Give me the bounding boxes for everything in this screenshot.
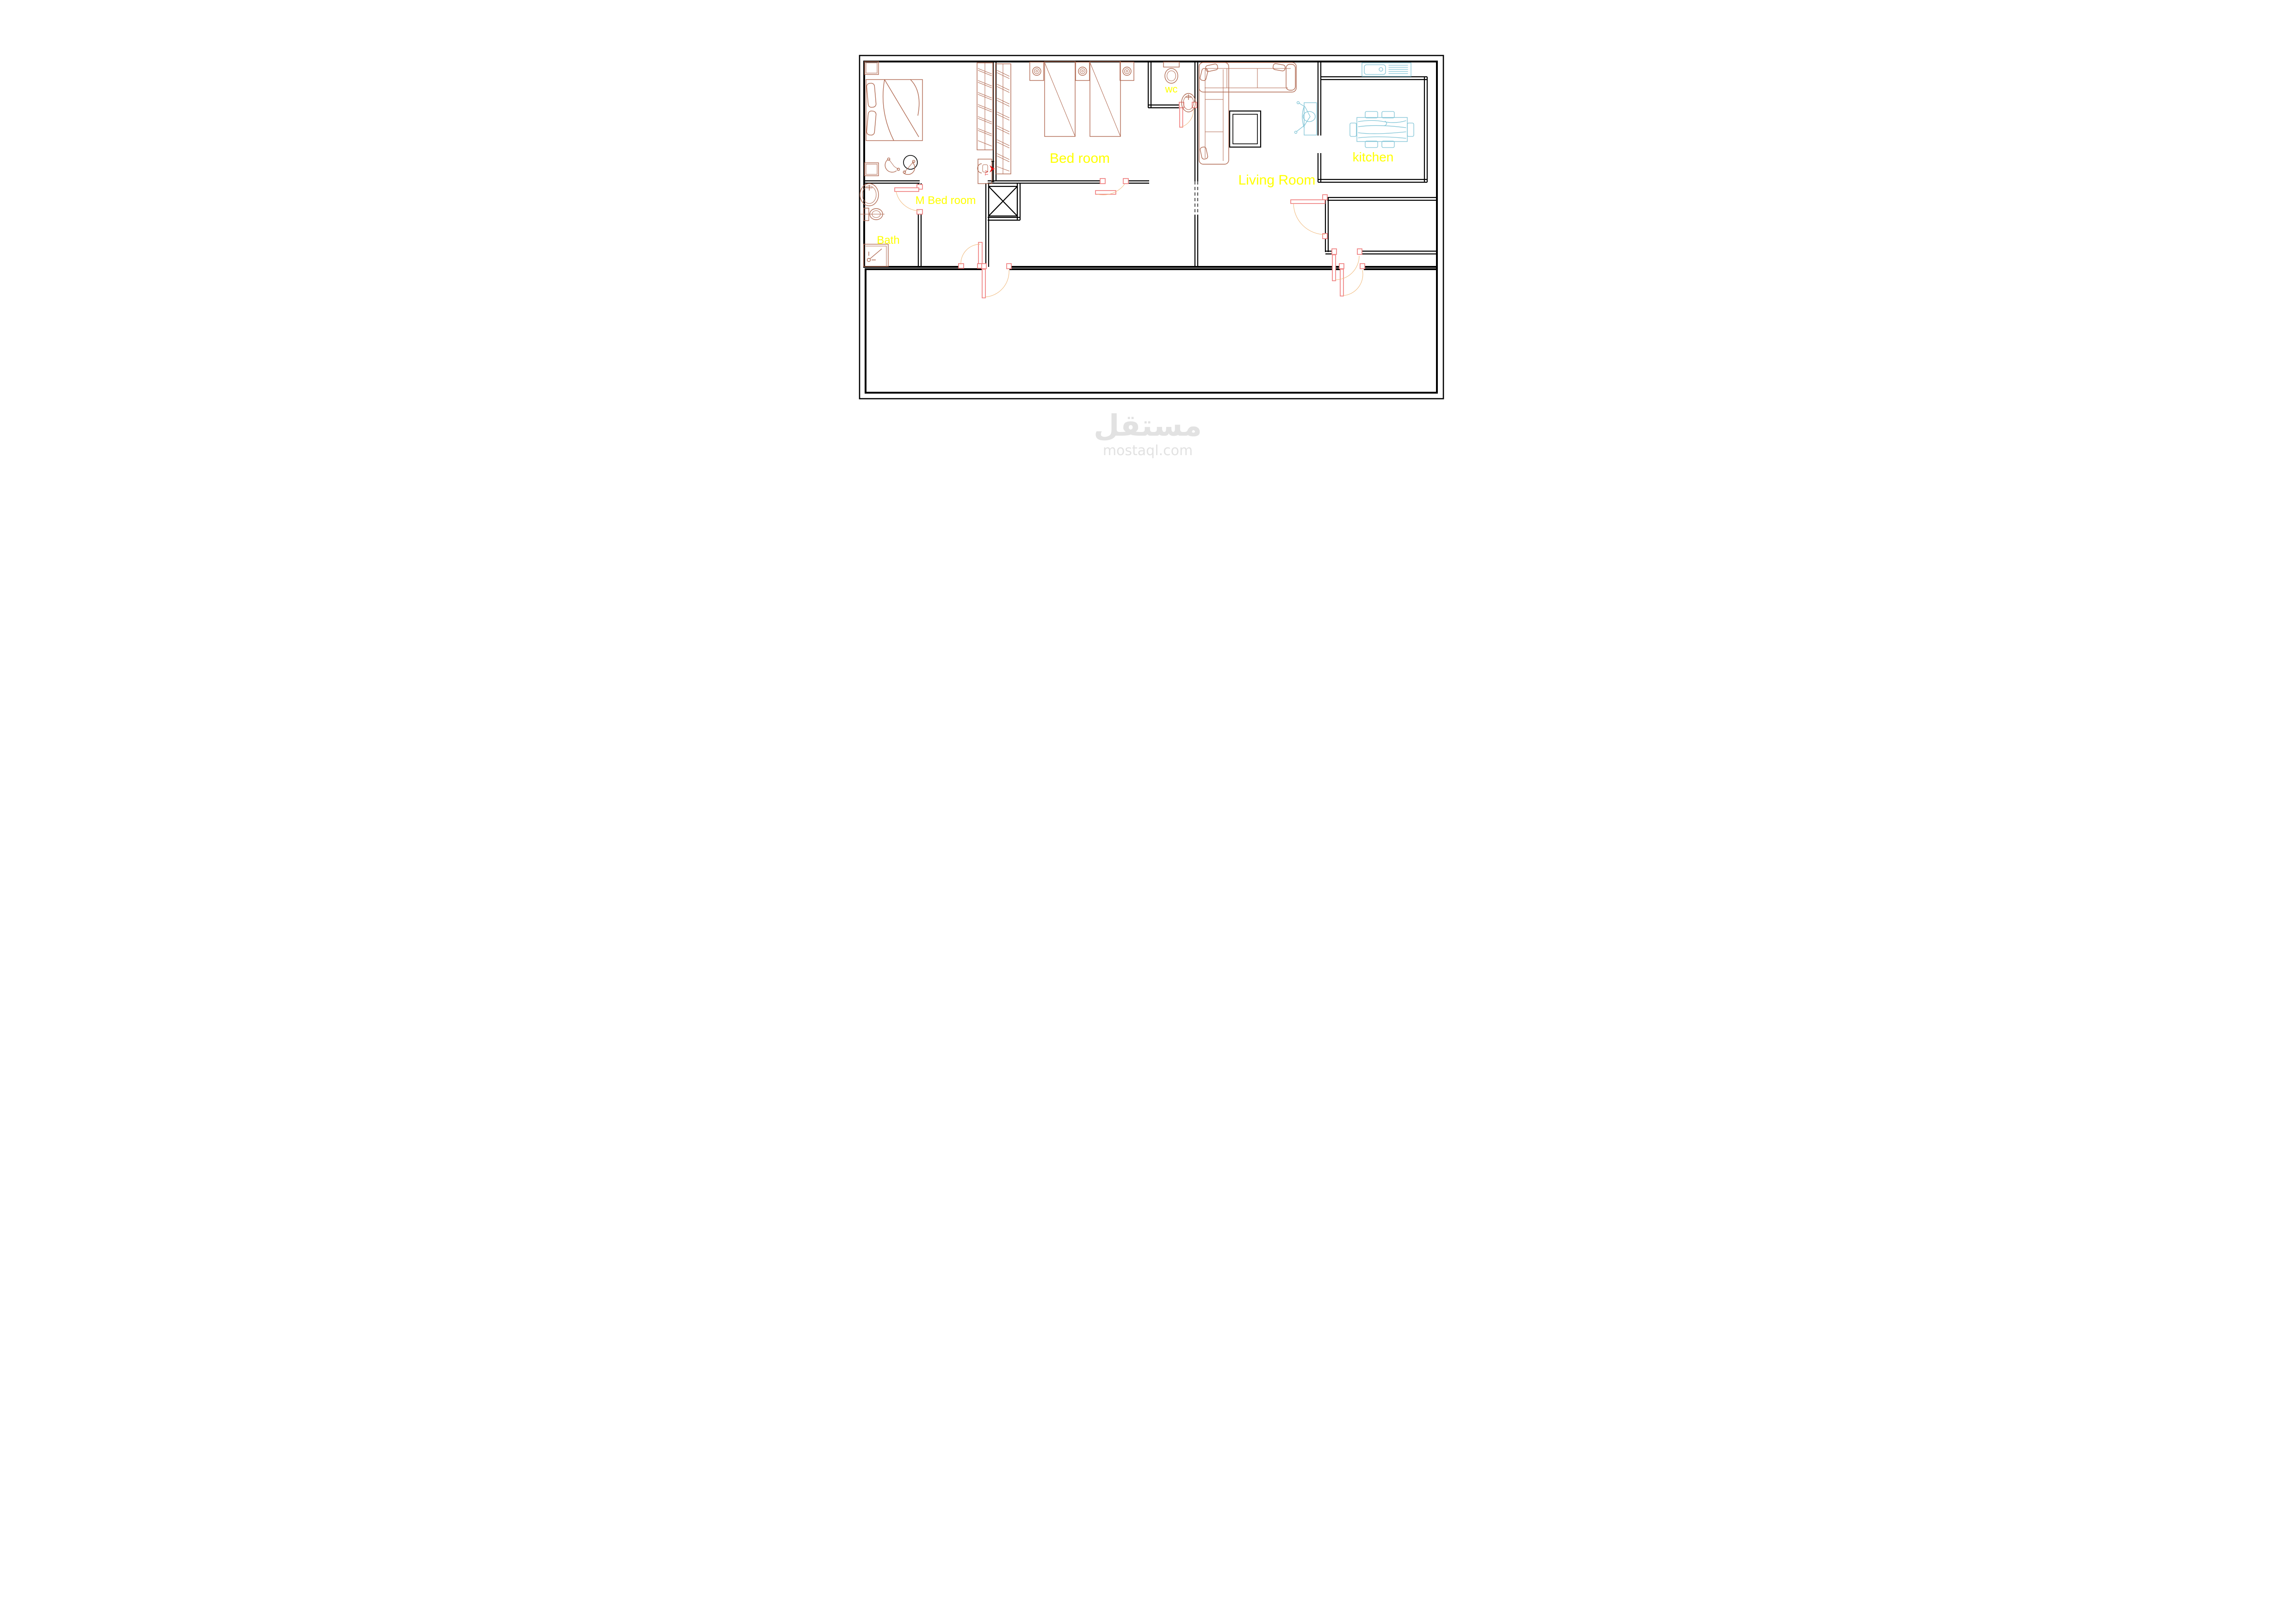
shaft [989,186,1017,216]
outer-walls [863,61,1438,394]
label-bedroom: Bed room [1050,151,1110,166]
label-living-room: Living Room [1238,173,1316,188]
armchair [885,158,899,172]
label-kitchen: kitchen [1353,150,1394,164]
chair [1407,123,1414,136]
kitchen-sink [1362,63,1411,76]
wardrobe [996,64,1011,174]
pillow [1205,63,1218,72]
watermark: مستقل mostaql.com [1094,409,1202,459]
wc-toilet [1163,62,1179,83]
room-labels: M Bed room Bath Bed room wc Living Room … [877,83,1393,247]
pillow [866,111,876,135]
coffee-table [1230,111,1261,147]
watermark-domain: mostaql.com [1103,443,1193,459]
chair [1350,123,1356,136]
wc-sink [1182,93,1195,112]
dining-table-set [1350,111,1414,148]
floor-plan-drawing: TV [820,0,1476,464]
right-bottom-door [1339,264,1365,296]
corner-basin [1295,102,1317,136]
open-threshold-dashed [1195,181,1198,215]
nightstand-lamp [1030,62,1044,80]
hall-bottom-door [982,264,1011,298]
floor-plan-canvas: TV [820,0,1476,464]
watermark-brand: مستقل [1094,409,1202,443]
duvet-folds [883,80,919,141]
wardrobe [977,63,993,150]
bedroom-door [1095,179,1128,195]
kitchen-fixtures [1350,63,1414,148]
pillow [866,83,876,107]
nightstand-lamp [1076,62,1089,80]
sofa-top [1199,62,1296,92]
tv-marker: TV [984,170,989,176]
m-bedroom-door [959,242,983,268]
bath-sink [860,184,879,206]
pillow [1200,147,1208,160]
right-room-door [1332,249,1362,281]
chair [1382,111,1394,118]
pillow [1200,68,1208,81]
single-bed [1090,62,1120,136]
chair [1365,111,1378,118]
label-bath: Bath [877,234,899,247]
m-bedroom-furniture: TV [865,62,995,184]
label-m-bedroom: M Bed room [916,194,976,207]
interior-walls [863,61,1437,267]
chair [1365,141,1378,148]
single-bed [1045,62,1075,136]
armchair [903,160,915,174]
desk-tv: TV [978,159,995,184]
chair [1382,141,1394,148]
label-wc: wc [1165,83,1178,95]
living-room-furniture [1199,62,1317,164]
shower [864,244,888,266]
pillow [1273,63,1286,71]
round-table [904,155,917,169]
corridor-door [1291,195,1327,239]
nightstand-lamp [1120,62,1134,80]
nightstand [865,62,879,74]
sofa-left [1199,62,1229,164]
nightstand [865,163,879,176]
